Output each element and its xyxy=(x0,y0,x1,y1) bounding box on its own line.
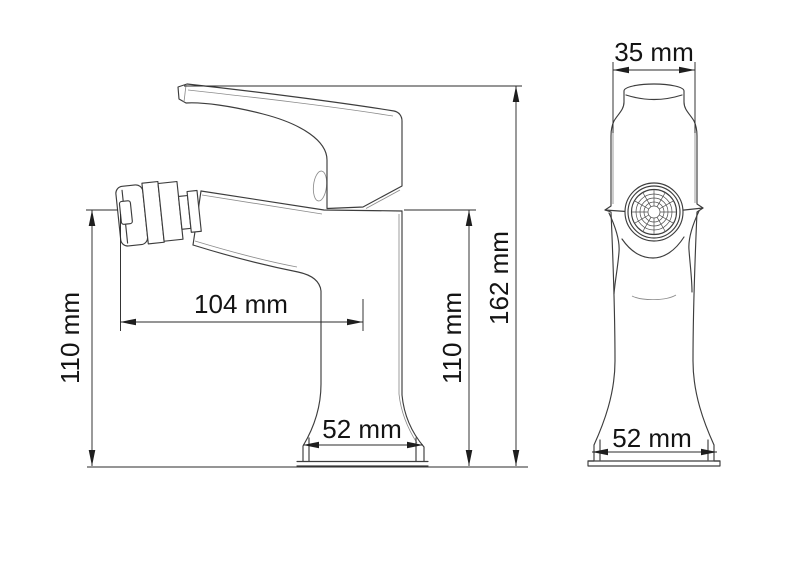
dimension-height-right: 110 mm xyxy=(404,210,476,466)
dim-height-left-label: 110 mm xyxy=(55,292,85,384)
technical-drawing-page: 162 mm 110 mm 110 mm 104 mm xyxy=(0,0,800,566)
spout-top-edge-inner xyxy=(202,195,322,214)
dim-height-right-label: 110 mm xyxy=(437,292,467,384)
lever-outline xyxy=(178,84,402,209)
aerator-side xyxy=(115,178,202,247)
dim-top-width-label: 35 mm xyxy=(614,37,693,67)
body-right-edge xyxy=(402,211,424,461)
aerator-cap-tab xyxy=(119,201,132,225)
body-left-edge xyxy=(193,245,321,461)
dim-base-front-label: 52 mm xyxy=(612,423,691,453)
side-view xyxy=(115,84,428,466)
aerator-front xyxy=(625,183,683,241)
dim-base-side-label: 52 mm xyxy=(322,414,401,444)
lever-handle xyxy=(178,84,402,209)
front-view xyxy=(588,84,720,466)
faucet-dimension-drawing: 162 mm 110 mm 110 mm 104 mm xyxy=(0,0,800,566)
dim-reach-label: 104 mm xyxy=(194,289,288,319)
base-bottom xyxy=(297,462,428,467)
body-left-edge-inner xyxy=(195,241,297,267)
front-silhouette xyxy=(588,84,720,466)
cartridge-highlight xyxy=(312,170,328,201)
dim-total-height-label: 162 mm xyxy=(484,231,514,325)
dimension-height-left: 110 mm xyxy=(55,210,118,466)
